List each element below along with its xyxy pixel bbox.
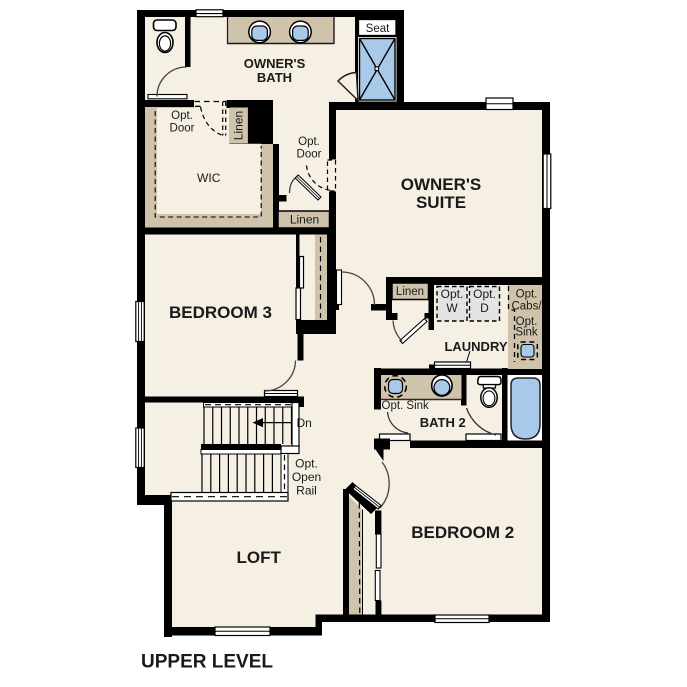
svg-text:UPPER LEVEL: UPPER LEVEL (141, 652, 273, 673)
svg-text:LAUNDRY: LAUNDRY (444, 339, 507, 354)
svg-text:Sink: Sink (515, 327, 538, 339)
svg-text:Dn: Dn (297, 416, 312, 430)
svg-text:W: W (446, 301, 458, 315)
svg-text:Opt.: Opt. (298, 136, 320, 148)
svg-text:Opt.: Opt. (516, 289, 538, 301)
svg-text:Door: Door (297, 149, 322, 161)
svg-text:Open: Open (292, 470, 321, 484)
svg-text:Opt.: Opt. (441, 287, 464, 301)
svg-text:OWNER'S: OWNER'S (244, 56, 306, 71)
svg-text:WIC: WIC (197, 171, 221, 185)
svg-text:Linen: Linen (396, 286, 424, 298)
svg-text:Opt.: Opt. (171, 110, 193, 122)
svg-text:LOFT: LOFT (237, 548, 282, 567)
svg-text:Opt.: Opt. (295, 457, 318, 471)
svg-text:Opt.: Opt. (473, 287, 496, 301)
svg-text:Linen: Linen (290, 213, 319, 227)
svg-text:Cabs/: Cabs/ (511, 301, 542, 313)
svg-text:D: D (480, 301, 489, 315)
svg-text:Rail: Rail (296, 484, 317, 498)
svg-text:Opt. Sink: Opt. Sink (382, 400, 430, 412)
svg-text:Linen: Linen (232, 111, 246, 140)
svg-text:BEDROOM 2: BEDROOM 2 (411, 523, 514, 542)
svg-text:SUITE: SUITE (416, 193, 466, 212)
svg-text:Seat: Seat (366, 23, 390, 35)
svg-text:BEDROOM 3: BEDROOM 3 (169, 303, 272, 322)
svg-text:BATH 2: BATH 2 (420, 415, 466, 430)
svg-text:OWNER'S: OWNER'S (401, 175, 482, 194)
svg-text:BATH: BATH (257, 70, 292, 85)
svg-text:Door: Door (170, 123, 195, 135)
